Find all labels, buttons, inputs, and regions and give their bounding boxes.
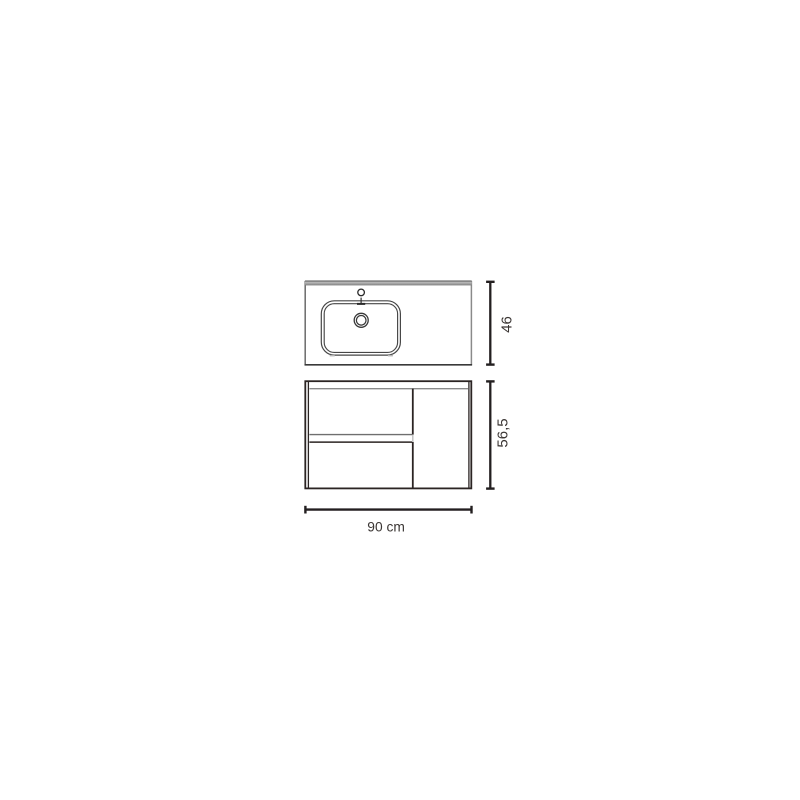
svg-text:46: 46: [498, 316, 515, 333]
svg-text:90 cm: 90 cm: [367, 520, 405, 535]
svg-text:56,5: 56,5: [495, 418, 512, 447]
